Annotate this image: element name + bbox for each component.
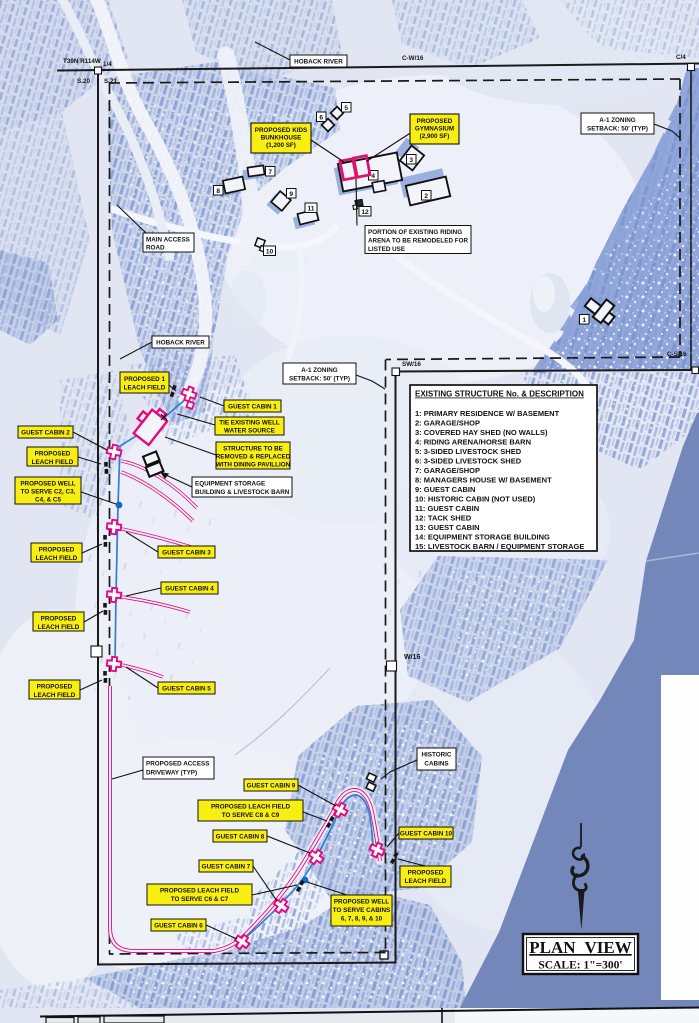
svg-text:7: GARAGE/SHOP: 7: GARAGE/SHOP: [415, 466, 480, 475]
svg-text:10: HISTORIC CABIN (NOT USED): 10: HISTORIC CABIN (NOT USED): [415, 495, 536, 504]
svg-text:ARENA TO BE REMODELED FOR: ARENA TO BE REMODELED FOR: [368, 238, 469, 245]
svg-text:LEACH FIELD: LEACH FIELD: [38, 624, 80, 631]
svg-text:SETBACK: 50' (TYP): SETBACK: 50' (TYP): [587, 126, 648, 133]
svg-text:LISTED USE: LISTED USE: [368, 246, 405, 253]
svg-text:C-W/16: C-W/16: [402, 55, 424, 62]
svg-text:C4, & C5: C4, & C5: [35, 497, 61, 504]
svg-text:11: GUEST CABIN: 11: GUEST CABIN: [415, 504, 479, 513]
svg-text:REMOVED & REPLACED: REMOVED & REPLACED: [216, 454, 291, 461]
svg-text:W/16: W/16: [404, 654, 420, 661]
svg-text:1: PRIMARY RESIDENCE W/ BASEME: 1: PRIMARY RESIDENCE W/ BASEMENT: [415, 409, 560, 418]
svg-text:PROPOSED: PROPOSED: [37, 684, 73, 691]
svg-text:(2,900 SF): (2,900 SF): [420, 133, 450, 140]
svg-text:2: 2: [424, 193, 428, 200]
svg-text:LEACH FIELD: LEACH FIELD: [34, 692, 76, 699]
svg-text:WATER SOURCE: WATER SOURCE: [224, 428, 275, 435]
svg-text:PROPOSED LEACH FIELD: PROPOSED LEACH FIELD: [160, 888, 240, 895]
svg-text:A-1 ZONING: A-1 ZONING: [301, 367, 337, 374]
svg-text:GUEST CABIN 4: GUEST CABIN 4: [165, 586, 214, 593]
svg-text:HOBACK RIVER: HOBACK RIVER: [294, 59, 343, 66]
svg-text:C/4: C/4: [676, 54, 686, 61]
svg-text:LEACH FIELD: LEACH FIELD: [124, 385, 166, 392]
svg-text:PROPOSED: PROPOSED: [417, 118, 453, 125]
svg-text:PROPOSED KIDS: PROPOSED KIDS: [255, 127, 307, 134]
svg-text:GUEST CABIN 2: GUEST CABIN 2: [21, 430, 70, 437]
svg-text:PROPOSED LEACH FIELD: PROPOSED LEACH FIELD: [211, 804, 291, 811]
svg-text:STRUCTURE TO BE: STRUCTURE TO BE: [223, 446, 283, 453]
svg-text:DRIVEWAY (TYP): DRIVEWAY (TYP): [146, 770, 197, 777]
svg-text:2: GARAGE/SHOP: 2: GARAGE/SHOP: [415, 419, 480, 428]
svg-text:12: TACK SHED: 12: TACK SHED: [415, 514, 472, 523]
svg-text:HOBACK RIVER: HOBACK RIVER: [156, 340, 205, 347]
svg-text:14: EQUIPMENT STORAGE BUILDING: 14: EQUIPMENT STORAGE BUILDING: [415, 533, 550, 542]
svg-text:EQUIPMENT STORAGE: EQUIPMENT STORAGE: [195, 481, 265, 488]
svg-text:6: 6: [319, 115, 323, 122]
svg-text:4: RIDING ARENA/HORSE BARN: 4: RIDING ARENA/HORSE BARN: [415, 438, 531, 447]
svg-text:GUEST CABIN 1: GUEST CABIN 1: [228, 404, 277, 411]
svg-text:13: GUEST CABIN: 13: GUEST CABIN: [415, 523, 480, 532]
svg-text:T39N R114W: T39N R114W: [63, 58, 101, 65]
svg-text:7: 7: [268, 169, 272, 176]
svg-text:9: 9: [289, 191, 293, 198]
svg-text:TO SERVE C2, C3,: TO SERVE C2, C3,: [21, 489, 76, 496]
svg-text:5: 3-SIDED LIVESTOCK SHED: 5: 3-SIDED LIVESTOCK SHED: [415, 447, 522, 456]
svg-text:GUEST CABIN 8: GUEST CABIN 8: [216, 834, 265, 841]
svg-text:TO SERVE CABINS: TO SERVE CABINS: [333, 907, 391, 914]
svg-text:A-1 ZONING: A-1 ZONING: [599, 117, 635, 124]
svg-text:3: COVERED HAY SHED (NO WALLS): 3: COVERED HAY SHED (NO WALLS): [415, 428, 548, 437]
svg-text:GYMNASIUM: GYMNASIUM: [415, 126, 454, 133]
svg-text:GUEST CABIN 10: GUEST CABIN 10: [400, 831, 453, 838]
svg-text:1/4: 1/4: [103, 61, 112, 68]
svg-text:11: 11: [308, 206, 315, 213]
svg-text:15: LIVESTOCK BARN / EQUIPMENT: 15: LIVESTOCK BARN / EQUIPMENT STORAGE: [415, 542, 584, 551]
svg-text:GUEST CABIN 7: GUEST CABIN 7: [202, 864, 251, 871]
svg-text:SETBACK: 50' (TYP): SETBACK: 50' (TYP): [289, 376, 350, 383]
svg-text:8: 8: [216, 188, 220, 195]
svg-text:PROPOSED: PROPOSED: [35, 451, 71, 458]
svg-text:PROPOSED: PROPOSED: [39, 547, 75, 554]
svg-text:9: GUEST CABIN: 9: GUEST CABIN: [415, 485, 475, 494]
svg-text:10: 10: [266, 249, 274, 256]
svg-text:PROPOSED: PROPOSED: [41, 616, 77, 623]
svg-text:LEACH FIELD: LEACH FIELD: [36, 555, 78, 562]
svg-text:1: 1: [582, 317, 586, 324]
svg-text:TO SERVE C8 & C9: TO SERVE C8 & C9: [222, 812, 280, 819]
svg-text:TIE EXISTING WELL: TIE EXISTING WELL: [219, 420, 280, 427]
svg-text:6, 7, 8, 9, & 10: 6, 7, 8, 9, & 10: [341, 916, 383, 923]
svg-text:PROPOSED 1: PROPOSED 1: [124, 376, 165, 383]
svg-text:S.20: S.20: [77, 78, 90, 85]
svg-text:GUEST CABIN 6: GUEST CABIN 6: [154, 923, 203, 930]
svg-text:TO SERVE C6 & C7: TO SERVE C6 & C7: [171, 896, 229, 903]
svg-text:12: 12: [361, 209, 369, 216]
svg-text:PLAN VIEW: PLAN VIEW: [529, 938, 631, 957]
svg-text:PROPOSED WELL: PROPOSED WELL: [20, 481, 75, 488]
svg-text:BUNKHOUSE: BUNKHOUSE: [261, 135, 302, 142]
svg-text:GUEST CABIN 3: GUEST CABIN 3: [162, 550, 211, 557]
svg-text:HISTORIC: HISTORIC: [422, 752, 452, 759]
svg-text:LEACH FIELD: LEACH FIELD: [405, 878, 447, 885]
svg-text:8: MANAGERS HOUSE W/ BASEMENT: 8: MANAGERS HOUSE W/ BASEMENT: [415, 476, 552, 485]
svg-text:WITH DINING PAVILLION: WITH DINING PAVILLION: [216, 462, 291, 469]
svg-text:BUILDING & LIVESTOCK BARN: BUILDING & LIVESTOCK BARN: [195, 489, 290, 496]
svg-text:MAIN ACCESS: MAIN ACCESS: [146, 237, 190, 244]
svg-text:SW/16: SW/16: [402, 361, 421, 368]
svg-text:PORTION OF EXISTING RIDING: PORTION OF EXISTING RIDING: [368, 229, 462, 236]
svg-text:GUEST CABIN 9: GUEST CABIN 9: [247, 783, 296, 790]
svg-text:PROPOSED ACCESS: PROPOSED ACCESS: [146, 761, 209, 768]
svg-text:3: 3: [409, 157, 413, 164]
svg-text:PROPOSED: PROPOSED: [408, 870, 444, 877]
svg-text:6: 3-SIDED LIVESTOCK SHED: 6: 3-SIDED LIVESTOCK SHED: [415, 457, 522, 466]
svg-text:4: 4: [371, 173, 375, 180]
svg-text:(1,200 SF): (1,200 SF): [266, 142, 296, 149]
svg-text:5: 5: [344, 105, 348, 112]
svg-text:PROPOSED WELL: PROPOSED WELL: [334, 899, 389, 906]
svg-text:S.21: S.21: [104, 78, 117, 85]
svg-text:EXISTING STRUCTURE No. & DESCR: EXISTING STRUCTURE No. & DESCRIPTION: [415, 390, 584, 399]
svg-text:LEACH FIELD: LEACH FIELD: [32, 459, 74, 466]
svg-text:ROAD: ROAD: [146, 245, 165, 252]
svg-text:CABINS: CABINS: [424, 761, 448, 768]
svg-text:SCALE: 1"=300': SCALE: 1"=300': [538, 960, 622, 972]
svg-text:GUEST CABIN 5: GUEST CABIN 5: [162, 686, 211, 693]
